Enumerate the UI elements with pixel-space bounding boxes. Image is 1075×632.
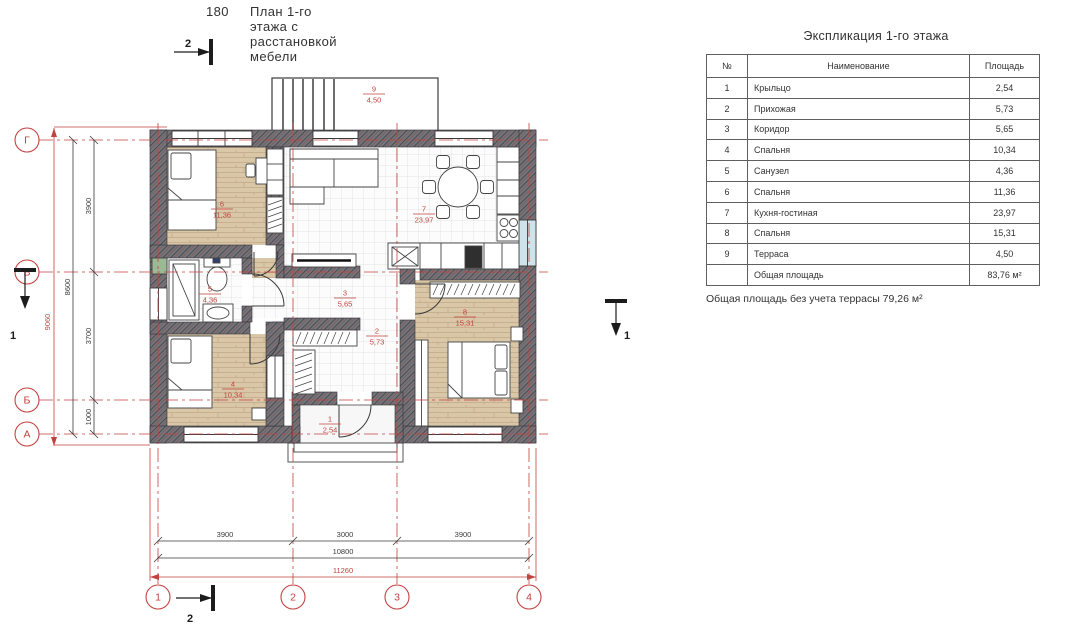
cell-name: Коридор bbox=[748, 119, 970, 140]
cell-num: 3 bbox=[707, 119, 748, 140]
closet bbox=[415, 340, 428, 426]
bed bbox=[168, 150, 216, 230]
drawing-sheet: 180 План 1-го этажа с расстановкой мебел… bbox=[0, 0, 1075, 632]
window bbox=[313, 131, 358, 146]
cell-num bbox=[707, 265, 748, 286]
axis-label: 1 bbox=[155, 592, 161, 604]
svg-text:10,34: 10,34 bbox=[224, 391, 243, 400]
svg-text:23,97: 23,97 bbox=[415, 216, 434, 225]
side-table bbox=[252, 408, 266, 420]
column-header-area: Площадь bbox=[970, 55, 1040, 78]
cell-name: Спальня bbox=[748, 140, 970, 161]
table-row: 9 Терраса 4,50 bbox=[707, 244, 1040, 265]
cell-num: 9 bbox=[707, 244, 748, 265]
section-label: 1 bbox=[624, 330, 630, 342]
porch-steps bbox=[288, 443, 403, 462]
wall-bathroom-right bbox=[242, 306, 252, 322]
table-row: 8 Спальня 15,31 bbox=[707, 223, 1040, 244]
cell-num: 7 bbox=[707, 202, 748, 223]
column-header-name: Наименование bbox=[748, 55, 970, 78]
dim-label: 8600 bbox=[63, 279, 72, 296]
nightstand bbox=[511, 327, 523, 341]
table-row: 7 Кухня-гостиная 23,97 bbox=[707, 202, 1040, 223]
dim-label: 3000 bbox=[337, 530, 354, 539]
coat-rack bbox=[293, 330, 357, 346]
svg-text:4,50: 4,50 bbox=[367, 96, 382, 105]
wall-stub bbox=[276, 245, 284, 278]
table-row: 1 Крыльцо 2,54 bbox=[707, 78, 1040, 99]
svg-text:9: 9 bbox=[372, 85, 376, 94]
porch-floor bbox=[300, 405, 395, 443]
cell-area: 15,31 bbox=[970, 223, 1040, 244]
stove bbox=[497, 215, 519, 241]
dishwasher bbox=[465, 246, 482, 268]
window bbox=[428, 427, 502, 442]
table-row: 3 Коридор 5,65 bbox=[707, 119, 1040, 140]
cell-name: Крыльцо bbox=[748, 78, 970, 99]
room-label-9: 9 4,50 bbox=[363, 85, 385, 105]
window bbox=[172, 131, 252, 146]
cell-area: 11,36 bbox=[970, 181, 1040, 202]
washbasin bbox=[203, 304, 233, 322]
cell-num: 8 bbox=[707, 223, 748, 244]
cell-area: 10,34 bbox=[970, 140, 1040, 161]
wall-porch-stub bbox=[395, 405, 403, 443]
cell-area: 2,54 bbox=[970, 78, 1040, 99]
window bbox=[435, 131, 493, 146]
cell-name: Терраса bbox=[748, 244, 970, 265]
coat-rack bbox=[293, 350, 315, 394]
axis-label: 4 bbox=[526, 592, 532, 604]
svg-text:5,65: 5,65 bbox=[338, 300, 353, 309]
svg-text:4,36: 4,36 bbox=[203, 296, 218, 305]
wall-corridor-hall bbox=[284, 318, 360, 330]
wardrobe bbox=[267, 149, 283, 195]
section-mark-2-bottom: 2 bbox=[176, 585, 215, 625]
legend: Экспликация 1-го этажа № Наименование Пл… bbox=[706, 29, 1046, 305]
wall-right bbox=[519, 130, 536, 443]
room-schedule-table: № Наименование Площадь 1 Крыльцо 2,54 2 … bbox=[706, 54, 1040, 286]
total-label: Общая площадь bbox=[748, 265, 970, 286]
cell-area: 5,73 bbox=[970, 98, 1040, 119]
table-row: 5 Санузел 4,36 bbox=[707, 161, 1040, 182]
svg-text:3: 3 bbox=[343, 289, 347, 298]
dim-label: 3900 bbox=[84, 198, 93, 215]
cell-num: 1 bbox=[707, 78, 748, 99]
dim-label: 3900 bbox=[217, 530, 234, 539]
section-label: 2 bbox=[185, 38, 191, 50]
section-mark-2-top: 2 bbox=[174, 38, 213, 65]
table-row: 6 Спальня 11,36 bbox=[707, 181, 1040, 202]
svg-text:5: 5 bbox=[208, 285, 212, 294]
axis-label: Б bbox=[24, 395, 31, 407]
wall-bedroom6-bottom bbox=[150, 245, 252, 258]
bed bbox=[168, 336, 212, 408]
floor-plan: 3900 3700 1000 8600 9060 3900 3000 bbox=[0, 0, 690, 632]
table-row: 4 Спальня 10,34 bbox=[707, 140, 1040, 161]
wall-bathroom-bottom bbox=[150, 322, 250, 334]
total-value: 83,76 м² bbox=[970, 265, 1040, 286]
cell-name: Кухня-гостиная bbox=[748, 202, 970, 223]
cell-num: 5 bbox=[707, 161, 748, 182]
bed bbox=[448, 342, 510, 398]
svg-text:11,36: 11,36 bbox=[213, 211, 231, 220]
legend-note: Общая площадь без учета террасы 79,26 м² bbox=[706, 293, 1046, 305]
cell-name: Спальня bbox=[748, 223, 970, 244]
axis-label: А bbox=[23, 429, 30, 441]
nightstand bbox=[511, 399, 523, 413]
dim-label: 11260 bbox=[333, 566, 353, 575]
axis-label: 3 bbox=[394, 592, 400, 604]
cell-name: Прихожая bbox=[748, 98, 970, 119]
cell-area: 23,97 bbox=[970, 202, 1040, 223]
svg-text:1: 1 bbox=[328, 415, 332, 424]
window bbox=[184, 427, 258, 442]
axis-label: 2 bbox=[290, 592, 296, 604]
svg-text:7: 7 bbox=[422, 205, 426, 214]
svg-text:2,54: 2,54 bbox=[323, 426, 338, 435]
svg-text:8: 8 bbox=[463, 308, 467, 317]
dim-label: 9060 bbox=[43, 314, 52, 331]
wall-left bbox=[150, 130, 167, 443]
cell-num: 6 bbox=[707, 181, 748, 202]
cell-area: 4,36 bbox=[970, 161, 1040, 182]
section-label: 1 bbox=[10, 330, 16, 342]
table-row: 2 Прихожая 5,73 bbox=[707, 98, 1040, 119]
window bbox=[150, 288, 167, 320]
terrace-steps bbox=[283, 79, 334, 130]
sink bbox=[392, 247, 418, 266]
cell-num: 4 bbox=[707, 140, 748, 161]
dim-label: 1000 bbox=[84, 409, 93, 426]
svg-text:15,31: 15,31 bbox=[456, 319, 475, 328]
chair bbox=[246, 164, 255, 177]
table-total-row: Общая площадь 83,76 м² bbox=[707, 265, 1040, 286]
section-label: 2 bbox=[187, 613, 193, 625]
legend-title: Экспликация 1-го этажа bbox=[706, 29, 1046, 43]
wardrobe bbox=[267, 356, 283, 398]
corridor-floor bbox=[252, 278, 400, 318]
corridor-floor bbox=[360, 318, 400, 330]
cell-name: Санузел bbox=[748, 161, 970, 182]
cell-area: 4,50 bbox=[970, 244, 1040, 265]
column-header-num: № bbox=[707, 55, 748, 78]
wall-hall-bottom bbox=[372, 392, 403, 405]
kitchen-counter bbox=[388, 243, 519, 269]
cell-name: Спальня bbox=[748, 181, 970, 202]
svg-text:6: 6 bbox=[220, 200, 224, 209]
axis-label: Г bbox=[24, 135, 30, 147]
window-glass bbox=[519, 220, 536, 266]
svg-text:4: 4 bbox=[231, 380, 235, 389]
tv-console bbox=[292, 254, 356, 267]
terrace bbox=[272, 78, 438, 131]
shower bbox=[169, 260, 199, 320]
dim-label: 3700 bbox=[84, 328, 93, 345]
table-header-row: № Наименование Площадь bbox=[707, 55, 1040, 78]
section-mark-1-right: 1 bbox=[605, 299, 630, 342]
coat-rack bbox=[267, 197, 283, 233]
cell-area: 5,65 bbox=[970, 119, 1040, 140]
cell-num: 2 bbox=[707, 98, 748, 119]
svg-text:2: 2 bbox=[375, 327, 379, 336]
dim-label: 10800 bbox=[333, 547, 354, 556]
kitchen-counter bbox=[497, 147, 519, 214]
svg-text:5,73: 5,73 bbox=[370, 338, 385, 347]
dim-label: 3900 bbox=[455, 530, 472, 539]
desk bbox=[256, 158, 268, 184]
